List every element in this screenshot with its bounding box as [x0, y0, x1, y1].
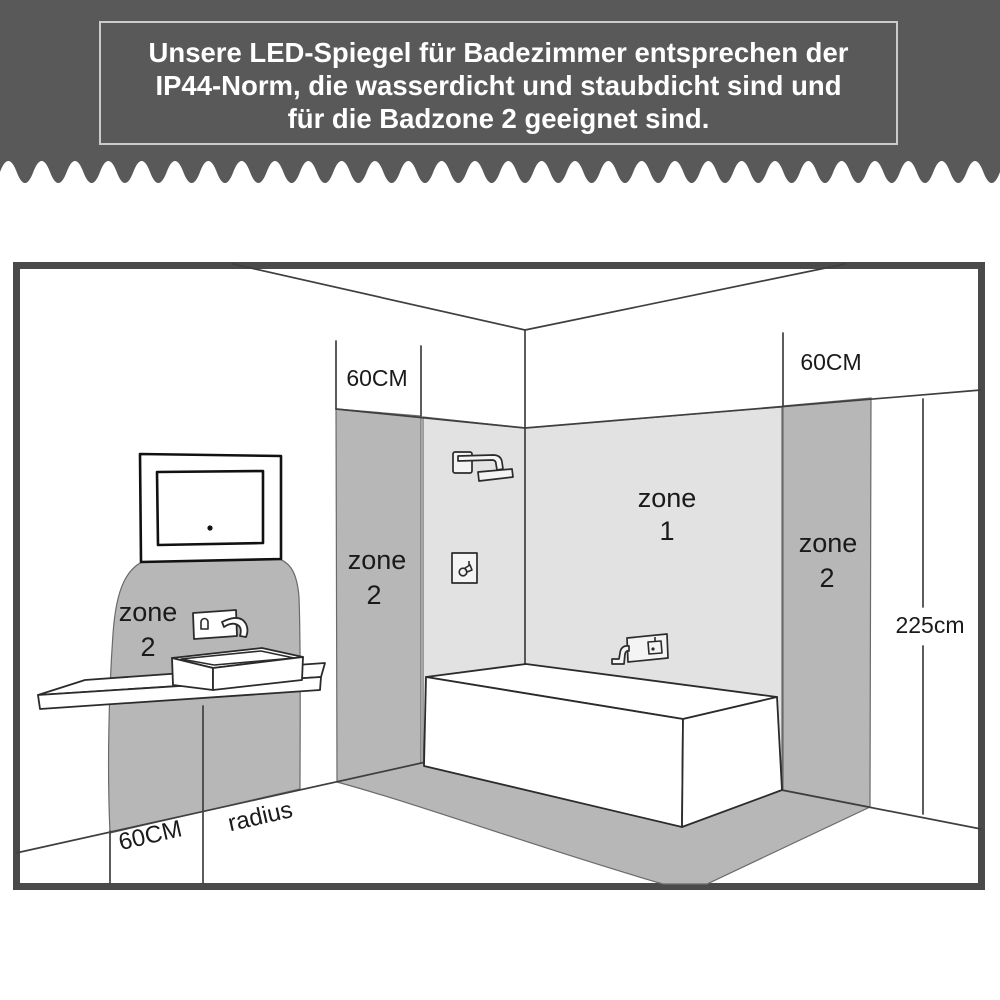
zone2-right-wall-strip: [783, 398, 871, 807]
label-zone2-basin-number: 2: [140, 632, 155, 662]
mirror-sensor-dot-icon: [207, 525, 212, 530]
shower-control-icon: [452, 553, 477, 583]
bath-faucet-dot: [651, 647, 654, 650]
label-zone2-mid-number: 2: [366, 580, 381, 610]
label-zone2-mid-word: zone: [348, 545, 407, 575]
label-left-wall-60cm: 60CM: [346, 365, 407, 391]
label-zone2-right-word: zone: [799, 528, 858, 558]
mirror-inner-frame: [157, 471, 263, 545]
label-zone1-word: zone: [638, 483, 697, 513]
label-zone2-basin-word: zone: [119, 597, 178, 627]
label-wall-height-225cm: 225cm: [895, 612, 964, 638]
label-zone1-number: 1: [659, 516, 674, 546]
label-zone2-right-number: 2: [819, 563, 834, 593]
bathroom-zones-diagram: 60CM 60CM zone 1 zone 2 zone 2 zone 2 22…: [0, 0, 1000, 1000]
led-mirror: [140, 454, 281, 562]
label-right-wall-60cm: 60CM: [800, 349, 861, 375]
